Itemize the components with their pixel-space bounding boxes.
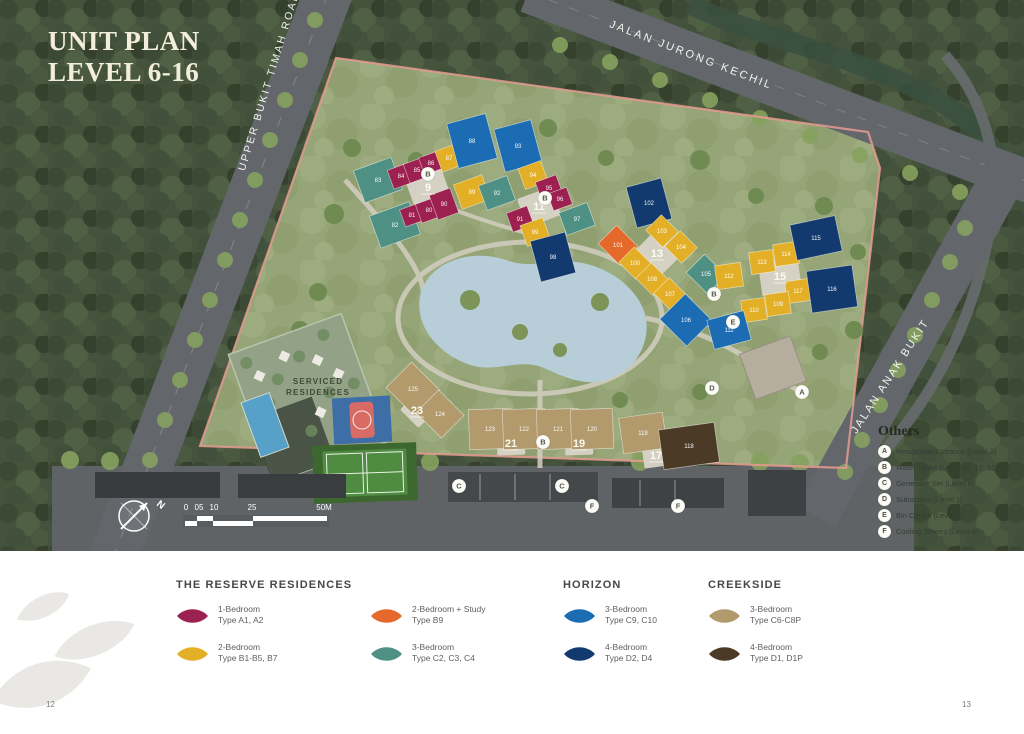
- svg-text:115: 115: [811, 236, 821, 242]
- svg-text:118: 118: [684, 444, 694, 450]
- marker-badge-D: D: [878, 493, 891, 506]
- others-item-label: Substation (Level 1): [896, 495, 963, 504]
- legend-swatch-leaf-icon: [563, 643, 596, 665]
- map-marker-B: B: [538, 191, 552, 205]
- map-marker-B: B: [421, 167, 435, 181]
- legend-item: 3-BedroomType C6-C8P: [708, 604, 866, 627]
- marker-badge-C: C: [878, 477, 891, 490]
- svg-text:86: 86: [428, 161, 435, 167]
- legend-item: 2-Bedroom + StudyType B9: [370, 604, 528, 627]
- others-item-E: EBin Centre (Level 1): [878, 509, 1024, 522]
- marker-badge-B: B: [878, 461, 891, 474]
- svg-text:114: 114: [781, 252, 791, 258]
- svg-text:124: 124: [435, 412, 446, 418]
- svg-text:110: 110: [749, 308, 759, 314]
- legend-item-line1: 2-Bedroom + Study: [412, 604, 485, 615]
- legend-item: 4-BedroomType D2, D4: [563, 642, 721, 665]
- legend-item-line2: Type C2, C3, C4: [412, 653, 475, 664]
- unit-plan-page: 8384858687888281809089939294959691999798…: [0, 0, 1024, 734]
- building-113: 113: [749, 249, 776, 274]
- svg-text:112: 112: [724, 274, 734, 280]
- basketball-court: [332, 396, 392, 445]
- others-item-label: Cooling Towers (Level 4): [896, 527, 978, 536]
- page-title-line2: LEVEL 6-16: [48, 57, 200, 88]
- legend-item-line1: 4-Bedroom: [750, 642, 803, 653]
- building-109: 109: [765, 291, 792, 316]
- svg-text:113: 113: [757, 260, 767, 266]
- svg-text:94: 94: [530, 173, 537, 179]
- legend-item: 3-BedroomType C9, C10: [563, 604, 721, 627]
- svg-text:E: E: [730, 318, 735, 327]
- svg-text:RESIDENCES: RESIDENCES: [286, 388, 350, 397]
- svg-text:98: 98: [550, 255, 557, 261]
- marker-badge-E: E: [878, 509, 891, 522]
- legend-item: 4-BedroomType D1, D1P: [708, 642, 866, 665]
- legend-swatch-leaf-icon: [370, 605, 403, 627]
- others-item-label: Bin Centre (Level 1): [896, 511, 963, 520]
- map-marker-D: D: [705, 381, 719, 395]
- building-118: 118: [658, 422, 719, 469]
- svg-text:93: 93: [515, 144, 522, 150]
- tower-label-15: 15: [773, 271, 787, 283]
- page-number-right: 13: [962, 700, 971, 709]
- scale-tick: 50M: [316, 503, 332, 512]
- legend-group: HORIZON3-BedroomType C9, C104-BedroomTyp…: [563, 579, 721, 665]
- legend-item-line2: Type B1-B5, B7: [218, 653, 278, 664]
- map-marker-E: E: [726, 315, 740, 329]
- map-marker-B: B: [707, 287, 721, 301]
- svg-text:88: 88: [469, 139, 476, 145]
- legend-swatch-leaf-icon: [708, 605, 741, 627]
- others-legend-title: Others: [878, 424, 1024, 440]
- legend-item-line1: 4-Bedroom: [605, 642, 652, 653]
- svg-text:119: 119: [638, 431, 648, 437]
- legend-group: CREEKSIDE3-BedroomType C6-C8P4-BedroomTy…: [708, 579, 866, 665]
- legend-item-line1: 1-Bedroom: [218, 604, 263, 615]
- tower-label-19: 19: [572, 438, 586, 450]
- legend-group-title: HORIZON: [563, 579, 721, 591]
- map-marker-C: C: [555, 479, 569, 493]
- tower-label-13: 13: [650, 248, 664, 260]
- svg-text:123: 123: [485, 427, 496, 433]
- legend-item-line1: 3-Bedroom: [412, 642, 475, 653]
- legend-item-line2: Type D2, D4: [605, 653, 652, 664]
- tower-label-23: 23: [410, 405, 424, 417]
- svg-text:85: 85: [414, 168, 421, 174]
- svg-text:B: B: [540, 438, 546, 447]
- svg-text:C: C: [456, 482, 462, 491]
- others-item-label: Generator Set (Level 6): [896, 479, 974, 488]
- legend-group-title: CREEKSIDE: [708, 579, 866, 591]
- svg-text:17: 17: [650, 450, 662, 462]
- others-item-B: BWater Tanks (Level 12, 17, 31, 32): [878, 461, 1024, 474]
- svg-text:B: B: [711, 290, 717, 299]
- others-item-label: Residential Entrance (Level 3): [896, 447, 996, 456]
- marker-badge-F: F: [878, 525, 891, 538]
- svg-text:116: 116: [827, 287, 837, 293]
- legend-footer: THE RESERVE RESIDENCES1-BedroomType A1, …: [0, 551, 1024, 734]
- legend-item-line2: Type C6-C8P: [750, 615, 801, 626]
- svg-text:103: 103: [657, 229, 668, 235]
- legend-item-line2: Type B9: [412, 615, 485, 626]
- svg-text:120: 120: [587, 427, 598, 433]
- others-item-A: AResidential Entrance (Level 3): [878, 445, 1024, 458]
- scale-tick: 10: [210, 503, 219, 512]
- others-item-D: DSubstation (Level 1): [878, 493, 1024, 506]
- legend-item-line2: Type C9, C10: [605, 615, 657, 626]
- svg-text:23: 23: [411, 405, 423, 417]
- tower-label-17: 17: [649, 450, 663, 462]
- svg-text:F: F: [590, 502, 595, 511]
- others-item-C: CGenerator Set (Level 6): [878, 477, 1024, 490]
- svg-text:100: 100: [630, 261, 641, 267]
- svg-text:104: 104: [676, 245, 687, 251]
- svg-text:99: 99: [532, 230, 539, 236]
- svg-text:102: 102: [644, 201, 655, 207]
- svg-text:F: F: [676, 502, 681, 511]
- svg-text:87: 87: [446, 156, 453, 162]
- svg-text:109: 109: [773, 302, 784, 308]
- legend-item: 1-BedroomType A1, A2: [176, 604, 334, 627]
- others-item-label: Water Tanks (Level 12, 17, 31, 32): [896, 463, 1010, 472]
- svg-text:A: A: [799, 388, 805, 397]
- scale-tick: 0: [184, 503, 189, 512]
- tower-label-21: 21: [504, 438, 518, 450]
- svg-text:97: 97: [574, 217, 581, 223]
- legend-group: THE RESERVE RESIDENCES1-BedroomType A1, …: [176, 579, 528, 665]
- svg-text:122: 122: [519, 427, 530, 433]
- svg-text:105: 105: [701, 272, 712, 278]
- building-116: 116: [806, 265, 857, 313]
- svg-text:83: 83: [375, 178, 382, 184]
- svg-text:21: 21: [505, 438, 517, 450]
- svg-text:90: 90: [441, 202, 448, 208]
- map-marker-A: A: [795, 385, 809, 399]
- svg-text:96: 96: [557, 197, 564, 203]
- legend-item: 3-BedroomType C2, C3, C4: [370, 642, 528, 665]
- svg-text:B: B: [542, 194, 548, 203]
- legend-swatch-leaf-icon: [176, 643, 209, 665]
- others-legend: Others AResidential Entrance (Level 3)BW…: [878, 424, 1024, 541]
- legend-item-line1: 3-Bedroom: [750, 604, 801, 615]
- svg-text:106: 106: [681, 318, 692, 324]
- legend-item-line1: 3-Bedroom: [605, 604, 657, 615]
- map-marker-F: F: [671, 499, 685, 513]
- svg-text:84: 84: [398, 174, 405, 180]
- legend-swatch-leaf-icon: [370, 643, 403, 665]
- svg-text:19: 19: [573, 438, 585, 450]
- svg-text:9: 9: [425, 182, 431, 194]
- site-map: 8384858687888281809089939294959691999798…: [0, 0, 1024, 551]
- svg-text:13: 13: [651, 248, 663, 260]
- legend-item-line2: Type D1, D1P: [750, 653, 803, 664]
- marker-badge-A: A: [878, 445, 891, 458]
- svg-text:91: 91: [517, 217, 524, 223]
- legend-item-line2: Type A1, A2: [218, 615, 263, 626]
- svg-text:108: 108: [647, 277, 658, 283]
- map-marker-C: C: [452, 479, 466, 493]
- map-marker-B: B: [536, 435, 550, 449]
- legend-group-title: THE RESERVE RESIDENCES: [176, 579, 528, 591]
- legend-swatch-leaf-icon: [708, 643, 741, 665]
- svg-text:81: 81: [409, 213, 416, 219]
- svg-text:121: 121: [553, 427, 564, 433]
- svg-text:82: 82: [392, 223, 399, 229]
- svg-text:107: 107: [665, 292, 676, 298]
- page-number-left: 12: [46, 700, 55, 709]
- map-marker-F: F: [585, 499, 599, 513]
- scale-tick: 25: [248, 503, 257, 512]
- legend-swatch-leaf-icon: [563, 605, 596, 627]
- svg-text:125: 125: [408, 387, 419, 393]
- svg-text:80: 80: [426, 208, 433, 214]
- legend-item-line1: 2-Bedroom: [218, 642, 278, 653]
- others-item-F: FCooling Towers (Level 4): [878, 525, 1024, 538]
- svg-text:92: 92: [494, 191, 501, 197]
- svg-text:B: B: [425, 170, 431, 179]
- svg-text:117: 117: [793, 289, 803, 295]
- page-title: UNIT PLAN LEVEL 6-16: [48, 26, 200, 88]
- building-112: 112: [714, 262, 743, 289]
- legend-item: 2-BedroomType B1-B5, B7: [176, 642, 334, 665]
- page-title-line1: UNIT PLAN: [48, 26, 200, 57]
- legend-swatch-leaf-icon: [176, 605, 209, 627]
- svg-text:89: 89: [469, 190, 476, 196]
- svg-text:D: D: [709, 384, 715, 393]
- svg-text:C: C: [559, 482, 565, 491]
- svg-text:101: 101: [613, 243, 624, 249]
- svg-text:15: 15: [774, 271, 786, 283]
- scale-tick: 05: [195, 503, 204, 512]
- others-legend-items: AResidential Entrance (Level 3)BWater Ta…: [878, 445, 1024, 538]
- svg-text:SERVICED: SERVICED: [293, 377, 343, 386]
